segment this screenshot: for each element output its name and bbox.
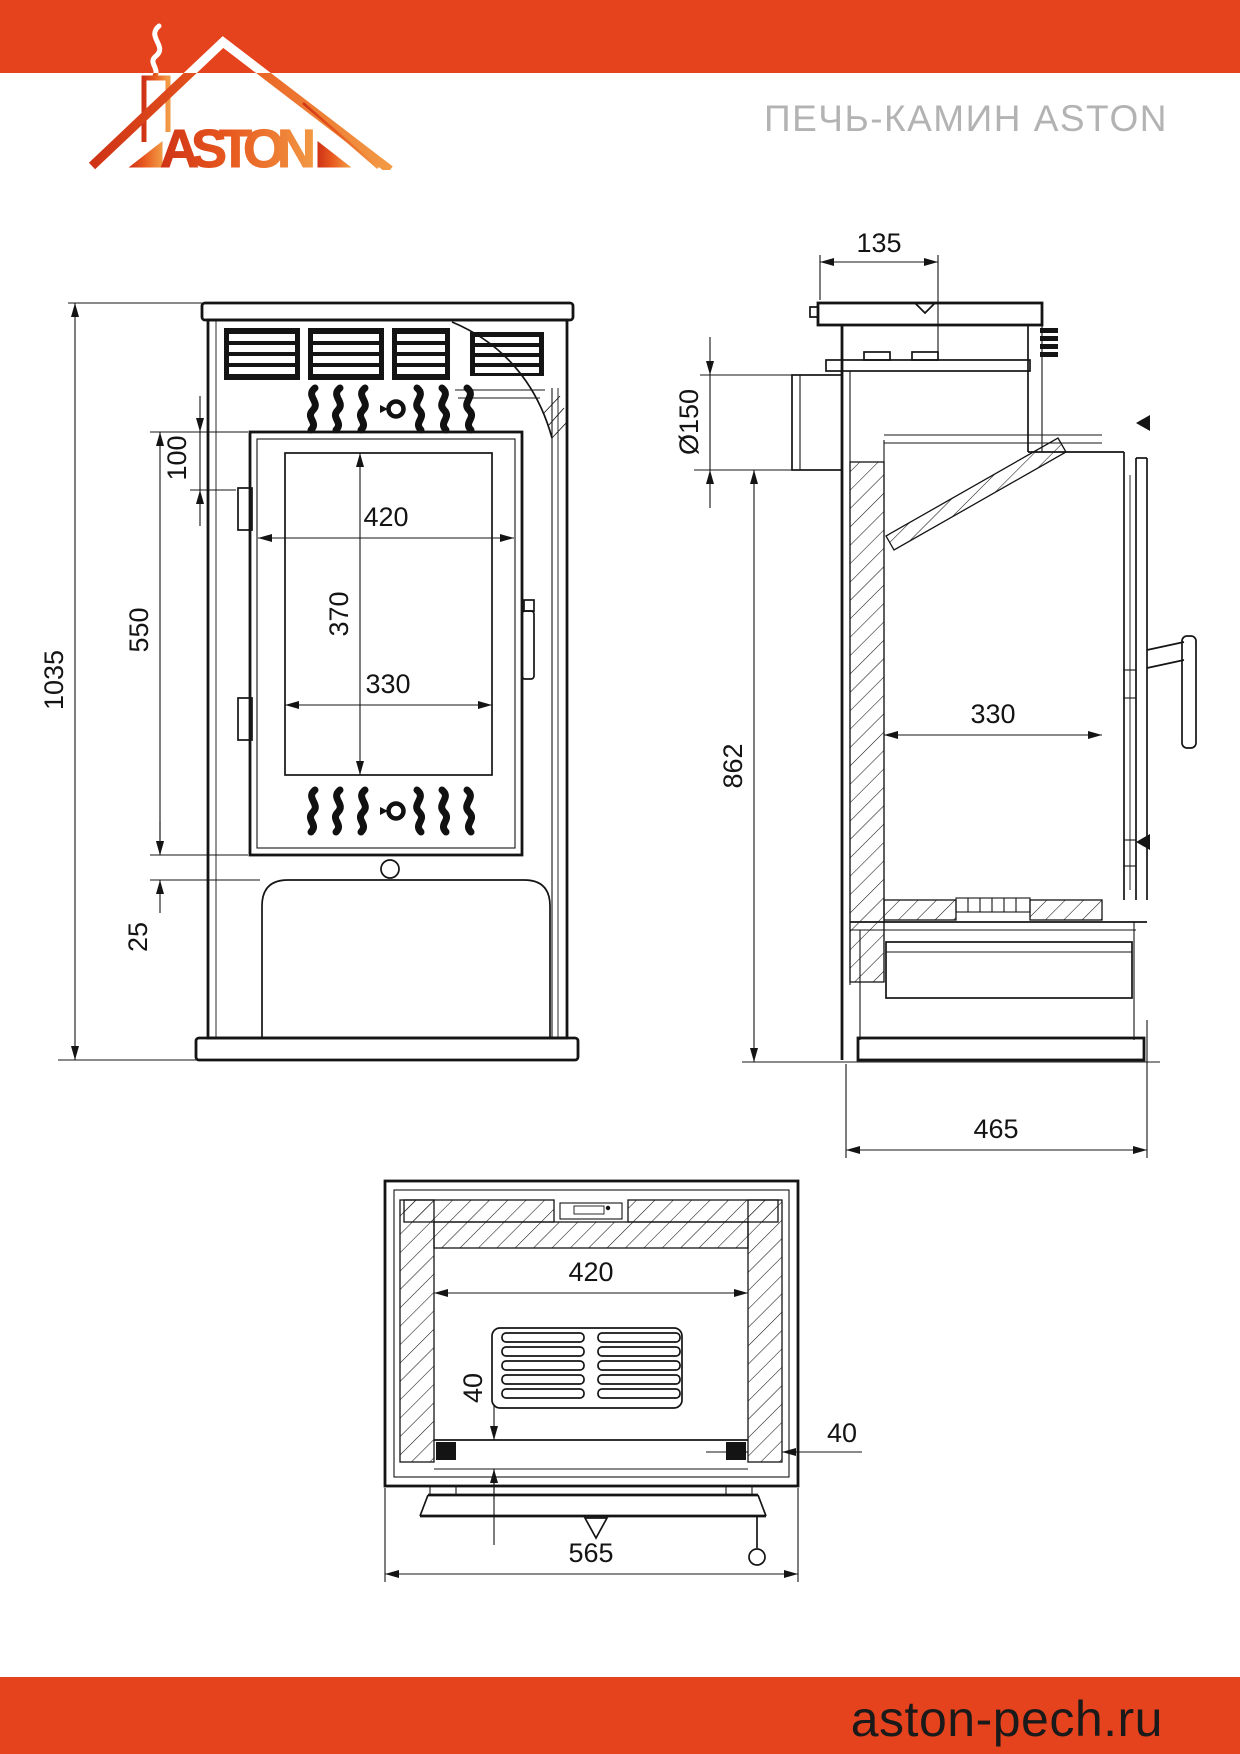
ash-drawer	[262, 880, 550, 1038]
page-title: ПЕЧЬ-КАМИН ASTON	[764, 98, 1168, 140]
dim-label-40-left: 40	[458, 1373, 488, 1403]
back-insulation	[850, 462, 884, 982]
dim-label-diam150: Ø150	[674, 389, 704, 455]
dim-label-25: 25	[123, 922, 153, 952]
site-url: aston-pech.ru	[851, 1690, 1163, 1748]
dim-label-330-side: 330	[970, 699, 1015, 729]
page: { "header": { "band_color": "#e5431d", "…	[0, 0, 1240, 1754]
dim-front-door-height: 550	[124, 432, 160, 855]
technical-drawing: 1035 100 550 25 420	[0, 200, 1240, 1640]
dim-label-465: 465	[973, 1114, 1018, 1144]
dim-side-overall-depth: 465	[846, 1020, 1147, 1158]
aston-logo: ASTON ASTON	[60, 10, 460, 170]
dim-top-firebox-width: 420	[434, 1257, 748, 1293]
dim-label-550: 550	[124, 607, 154, 652]
top-grate	[492, 1328, 682, 1408]
flue-outlet	[792, 375, 842, 470]
side-base	[858, 1038, 1144, 1060]
dim-label-862: 862	[718, 743, 748, 788]
dim-label-420: 420	[363, 502, 408, 532]
top-view: 420 40 40	[385, 1181, 862, 1582]
dim-front-door-top-offset: 100	[162, 396, 200, 526]
baffle-plate	[886, 438, 1066, 550]
side-grate	[884, 898, 1102, 920]
dim-front-opening-width: 420	[258, 502, 514, 538]
front-top-cap	[202, 303, 573, 320]
flame-decor-bottom	[310, 790, 471, 832]
front-base	[196, 1038, 578, 1060]
dim-label-1035: 1035	[39, 650, 69, 710]
logo-orange-part: ASTON	[92, 26, 390, 170]
top-right-wall	[748, 1200, 782, 1462]
dim-label-135: 135	[856, 228, 901, 258]
front-view: 1035 100 550 25 420	[39, 303, 578, 1060]
air-control-knob	[381, 860, 399, 878]
front-vent-grille	[224, 328, 544, 380]
top-left-wall	[400, 1200, 434, 1462]
dim-side-flue-height: 862	[718, 470, 754, 1062]
side-top-cap	[818, 303, 1042, 325]
dim-top-overall-width: 565	[385, 1488, 798, 1582]
dim-label-370: 370	[324, 591, 354, 636]
dim-label-565: 565	[568, 1538, 613, 1568]
flame-decor-top	[310, 388, 471, 430]
side-door-profile	[1124, 452, 1147, 900]
dim-label-420-top: 420	[568, 1257, 613, 1287]
front-door	[250, 432, 522, 855]
side-view: 135 Ø150 862 330 465	[674, 228, 1196, 1158]
dim-top-front-gap: 40	[458, 1373, 494, 1545]
side-fins	[1040, 328, 1058, 357]
dim-side-flue-offset: 135	[820, 228, 938, 358]
dim-front-glass-width: 330	[285, 669, 492, 705]
dim-front-overall-height: 1035	[39, 303, 202, 1060]
dim-label-100: 100	[162, 435, 192, 480]
dim-label-40-right: 40	[827, 1418, 857, 1448]
door-handle	[524, 600, 534, 611]
side-door-handle	[1147, 636, 1196, 748]
top-back-insulation	[434, 1222, 748, 1248]
logo-wordmark: ASTON	[160, 119, 316, 170]
dim-label-330-front: 330	[365, 669, 410, 699]
dim-front-glass-height: 370	[324, 453, 360, 775]
dim-side-firebox-depth: 330	[884, 699, 1102, 735]
top-damper-plate	[560, 1203, 622, 1219]
dim-front-door-drawer-gap: 25	[123, 822, 160, 952]
dim-side-flue-diameter: Ø150	[674, 337, 842, 508]
side-ash-drawer	[886, 942, 1132, 998]
